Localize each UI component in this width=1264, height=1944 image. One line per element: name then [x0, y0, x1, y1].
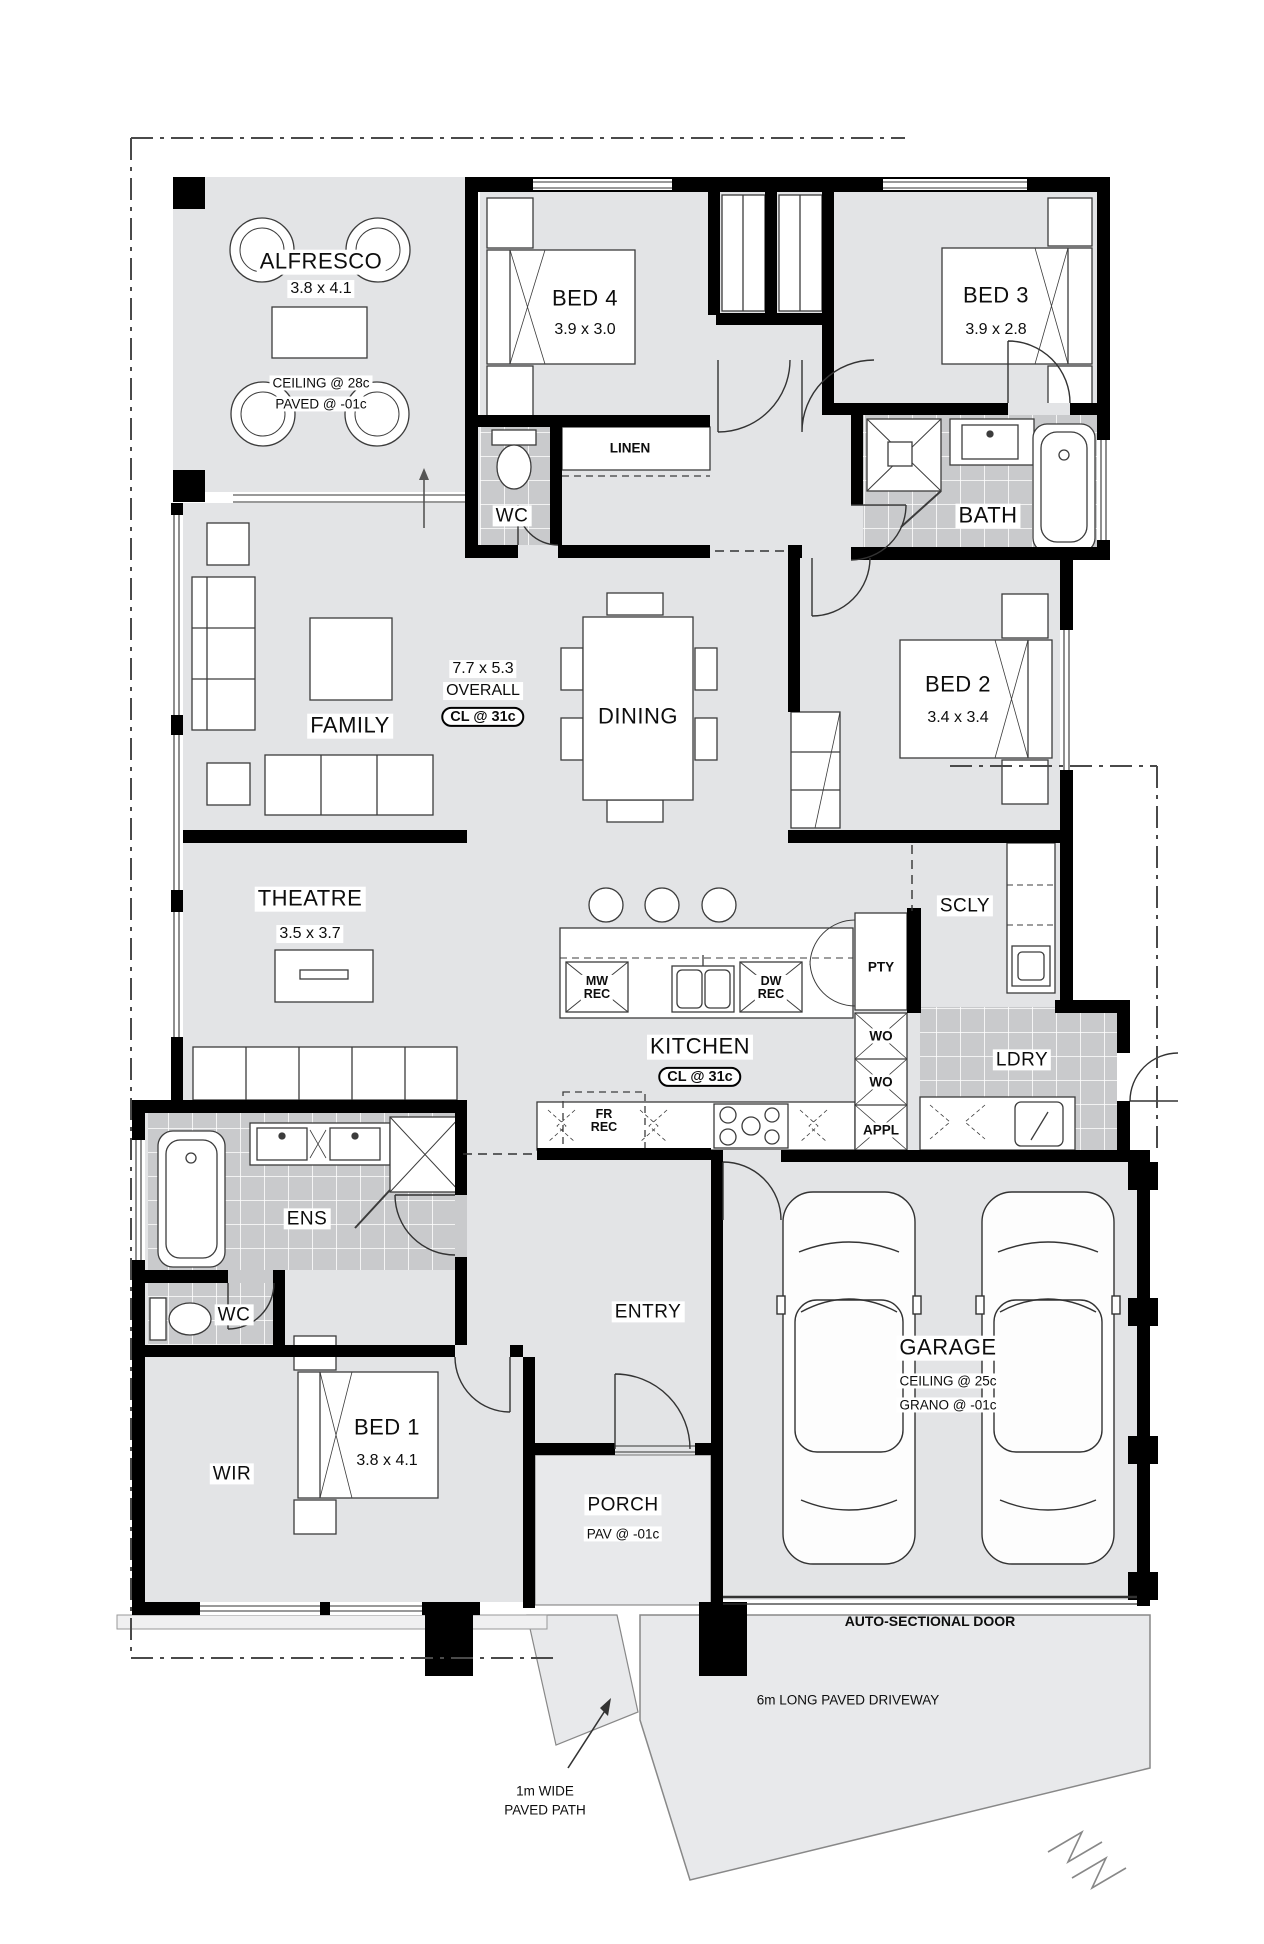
- overall-dims: 7.7 x 5.3: [449, 660, 516, 678]
- room-label-ens: ENS: [284, 1208, 331, 1229]
- room-label-alfresco: ALFRESCO: [257, 250, 386, 275]
- room-label-scly: SCLY: [937, 895, 993, 916]
- room-label-porch: PORCH: [584, 1494, 661, 1515]
- room-label-theatre: THEATRE: [255, 887, 366, 912]
- room-label-dining: DINING: [595, 705, 681, 730]
- label-wo-2: WO: [866, 1074, 895, 1089]
- floorplan-drawing: [0, 0, 1264, 1944]
- room-label-garage: GARAGE: [896, 1336, 999, 1361]
- annotation-auto-door: AUTO-SECTIONAL DOOR: [842, 1614, 1019, 1630]
- label-appl: APPL: [860, 1122, 902, 1137]
- break-line-icon: [1048, 1832, 1102, 1862]
- room-label-wc-top: WC: [493, 505, 532, 526]
- room-label-ldry: LDRY: [993, 1049, 1051, 1070]
- room-label-bath: BATH: [955, 504, 1020, 529]
- note-porch-pav: PAV @ -01c: [584, 1526, 662, 1541]
- room-label-wc-ens: WC: [215, 1304, 254, 1325]
- overall-label: OVERALL: [443, 682, 523, 700]
- annotation-path-1: 1m WIDE: [513, 1783, 577, 1798]
- note-garage-grano: GRANO @ -01c: [897, 1397, 1000, 1412]
- dims-label-theatre: 3.5 x 3.7: [276, 925, 343, 943]
- label-mw-rec: MWREC: [581, 975, 613, 1001]
- label-fr-rec: FRREC: [588, 1108, 620, 1134]
- note-alfresco-ceiling: CEILING @ 28c: [270, 375, 373, 390]
- overall-ceiling-pill: CL @ 31c: [441, 707, 524, 727]
- room-label-bed4: BED 4: [549, 287, 621, 312]
- room-label-wir: WIR: [210, 1463, 254, 1484]
- kitchen-ceiling-pill: CL @ 31c: [658, 1067, 741, 1087]
- label-dw-rec: DWREC: [755, 975, 787, 1001]
- note-alfresco-paved: PAVED @ -01c: [272, 396, 369, 411]
- room-label-bed3: BED 3: [960, 284, 1032, 309]
- room-label-entry: ENTRY: [612, 1301, 685, 1322]
- annotation-path-2: PAVED PATH: [501, 1802, 589, 1817]
- dims-label-bed1: 3.8 x 4.1: [353, 1452, 420, 1470]
- break-line-icon: [1072, 1858, 1126, 1888]
- room-label-bed2: BED 2: [922, 673, 994, 698]
- label-linen: LINEN: [607, 440, 654, 455]
- annotation-driveway: 6m LONG PAVED DRIVEWAY: [754, 1692, 943, 1707]
- dims-label-alfresco: 3.8 x 4.1: [287, 280, 354, 298]
- room-label-kitchen: KITCHEN: [647, 1035, 753, 1060]
- note-garage-ceiling: CEILING @ 25c: [897, 1373, 1000, 1388]
- dims-label-bed3: 3.9 x 2.8: [962, 321, 1029, 339]
- dims-label-bed2: 3.4 x 3.4: [924, 709, 991, 727]
- label-pty: PTY: [865, 959, 897, 974]
- dims-label-bed4: 3.9 x 3.0: [551, 321, 618, 339]
- label-wo-1: WO: [866, 1028, 895, 1043]
- room-label-family: FAMILY: [307, 714, 393, 739]
- room-label-bed1: BED 1: [351, 1416, 423, 1441]
- floorplan-page: ALFRESCO 3.8 x 4.1 CEILING @ 28c PAVED @…: [0, 0, 1264, 1944]
